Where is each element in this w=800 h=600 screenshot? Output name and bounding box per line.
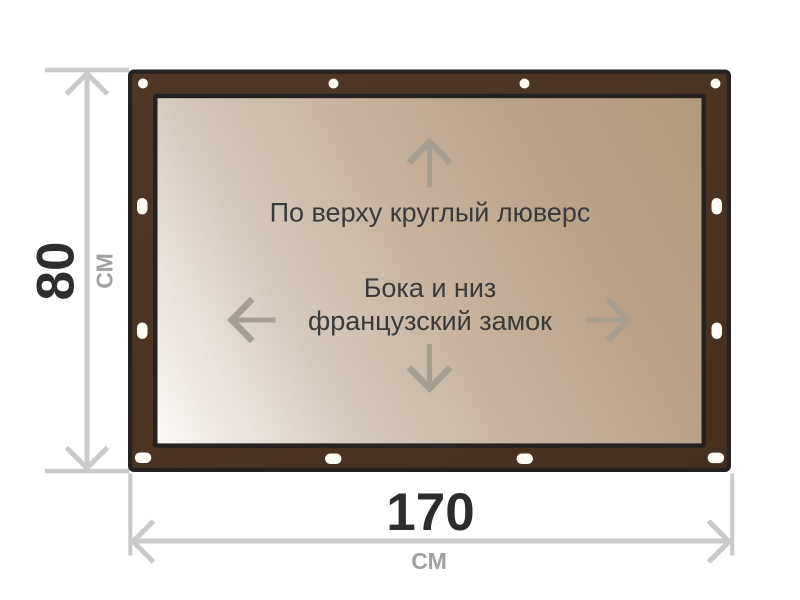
svg-text:170: 170 <box>386 483 474 542</box>
svg-text:Бока и низ: Бока и низ <box>364 273 497 303</box>
svg-text:По верху круглый люверс: По верху круглый люверс <box>270 198 591 228</box>
svg-text:СМ: СМ <box>411 548 446 574</box>
svg-text:французский замок: французский замок <box>308 306 552 336</box>
svg-text:80: 80 <box>27 242 86 301</box>
svg-text:СМ: СМ <box>92 253 118 288</box>
